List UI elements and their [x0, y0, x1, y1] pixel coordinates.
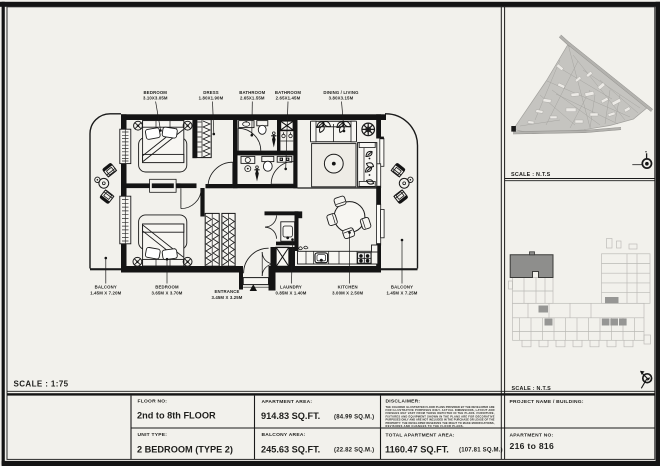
svg-text:SCALE : 1:75: SCALE : 1:75 [14, 380, 69, 389]
svg-text:DINING / LIVING: DINING / LIVING [323, 90, 359, 95]
svg-text:914.83 SQ.FT.: 914.83 SQ.FT. [261, 411, 320, 421]
svg-text:2.65X1.55M: 2.65X1.55M [240, 96, 265, 101]
svg-text:LAUNDRY: LAUNDRY [280, 285, 302, 290]
svg-text:PROJECT NAME / BUILDING:: PROJECT NAME / BUILDING: [510, 399, 584, 405]
svg-text:SCALE : N.T.S: SCALE : N.T.S [512, 386, 552, 392]
svg-text:3.65M X 3.70M: 3.65M X 3.70M [151, 291, 182, 296]
svg-text:2 BEDROOM (TYPE 2): 2 BEDROOM (TYPE 2) [137, 444, 233, 454]
svg-text:ENTRANCE: ENTRANCE [214, 289, 239, 294]
svg-text:BEDROOM: BEDROOM [155, 285, 179, 290]
svg-text:216 to 816: 216 to 816 [510, 441, 555, 451]
svg-text:DRESS: DRESS [203, 90, 219, 95]
svg-text:1.80X1.90M: 1.80X1.90M [199, 96, 224, 101]
svg-text:BALCONY: BALCONY [391, 285, 413, 290]
svg-text:(22.82 SQ.M.): (22.82 SQ.M.) [334, 448, 374, 454]
svg-text:BALCONY: BALCONY [95, 285, 117, 290]
svg-text:0.85M X 1.40M: 0.85M X 1.40M [275, 291, 306, 296]
svg-text:BALCONY AREA:: BALCONY AREA: [262, 432, 306, 438]
svg-text:REVISIONS AND CHANGES TO THE F: REVISIONS AND CHANGES TO THE FLOOR PLANS… [386, 424, 464, 428]
svg-text:FLOOR NO:: FLOOR NO: [138, 399, 168, 405]
svg-text:APARTMENT AREA:: APARTMENT AREA: [262, 399, 313, 405]
svg-text:1.45M X 7.20M: 1.45M X 7.20M [90, 291, 121, 296]
svg-text:KITCHEN: KITCHEN [338, 285, 358, 290]
svg-text:DISCLAIMER:: DISCLAIMER: [386, 399, 421, 405]
svg-text:SCALE : N.T.S: SCALE : N.T.S [511, 172, 551, 178]
svg-text:3.10X3.05M: 3.10X3.05M [143, 96, 168, 101]
svg-text:APARTMENT NO:: APARTMENT NO: [510, 433, 554, 439]
svg-text:BATHROOM: BATHROOM [239, 90, 265, 95]
svg-text:1160.47 SQ.FT.: 1160.47 SQ.FT. [385, 444, 449, 454]
svg-text:1.45M X 7.25M: 1.45M X 7.25M [386, 291, 417, 296]
svg-text:2nd to 8th FLOOR: 2nd to 8th FLOOR [137, 411, 216, 421]
svg-text:UNIT TYPE:: UNIT TYPE: [138, 432, 168, 438]
svg-text:3.00M X 2.50M: 3.00M X 2.50M [332, 291, 363, 296]
svg-text:3.45M X 3.25M: 3.45M X 3.25M [211, 295, 242, 300]
svg-text:TOTAL APARTMENT AREA:: TOTAL APARTMENT AREA: [386, 433, 455, 439]
svg-text:(107.81 SQ.M.): (107.81 SQ.M.) [459, 448, 503, 454]
svg-text:245.63 SQ.FT.: 245.63 SQ.FT. [261, 444, 320, 454]
svg-text:(84.99 SQ.M.): (84.99 SQ.M.) [334, 415, 374, 421]
svg-text:BATHROOM: BATHROOM [275, 90, 301, 95]
svg-text:BEDROOM: BEDROOM [144, 90, 168, 95]
svg-text:3.80X3.15M: 3.80X3.15M [329, 96, 354, 101]
svg-text:2.65X1.45M: 2.65X1.45M [276, 96, 301, 101]
